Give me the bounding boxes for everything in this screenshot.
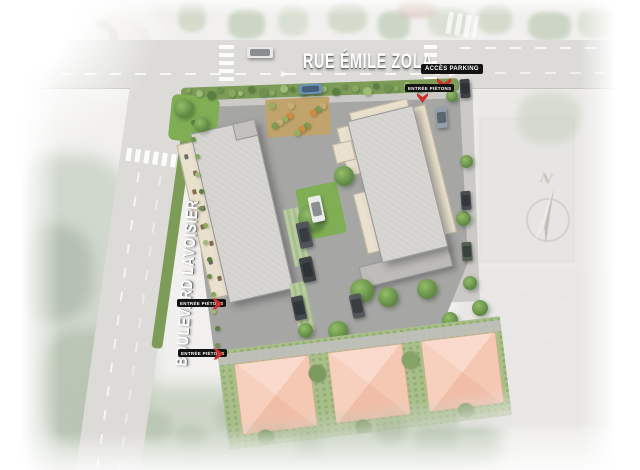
site-plan-canvas: N RUE ÉMILE ZOLA BOULEVARD LAVOISIER ACC…	[0, 0, 640, 470]
annotation-layer: RUE ÉMILE ZOLA BOULEVARD LAVOISIER ACCÈS…	[0, 0, 640, 470]
acces-parking-label: ACCÈS PARKING	[421, 64, 483, 74]
entree-pietons-top-marker-icon	[417, 93, 428, 103]
street-label-boulevard-lavoisier: BOULEVARD LAVOISIER	[174, 199, 204, 367]
street-label-rue-emile-zola: RUE ÉMILE ZOLA	[303, 50, 433, 74]
entree-pietons-top-label: ENTRÉE PIÉTONS	[405, 84, 454, 92]
